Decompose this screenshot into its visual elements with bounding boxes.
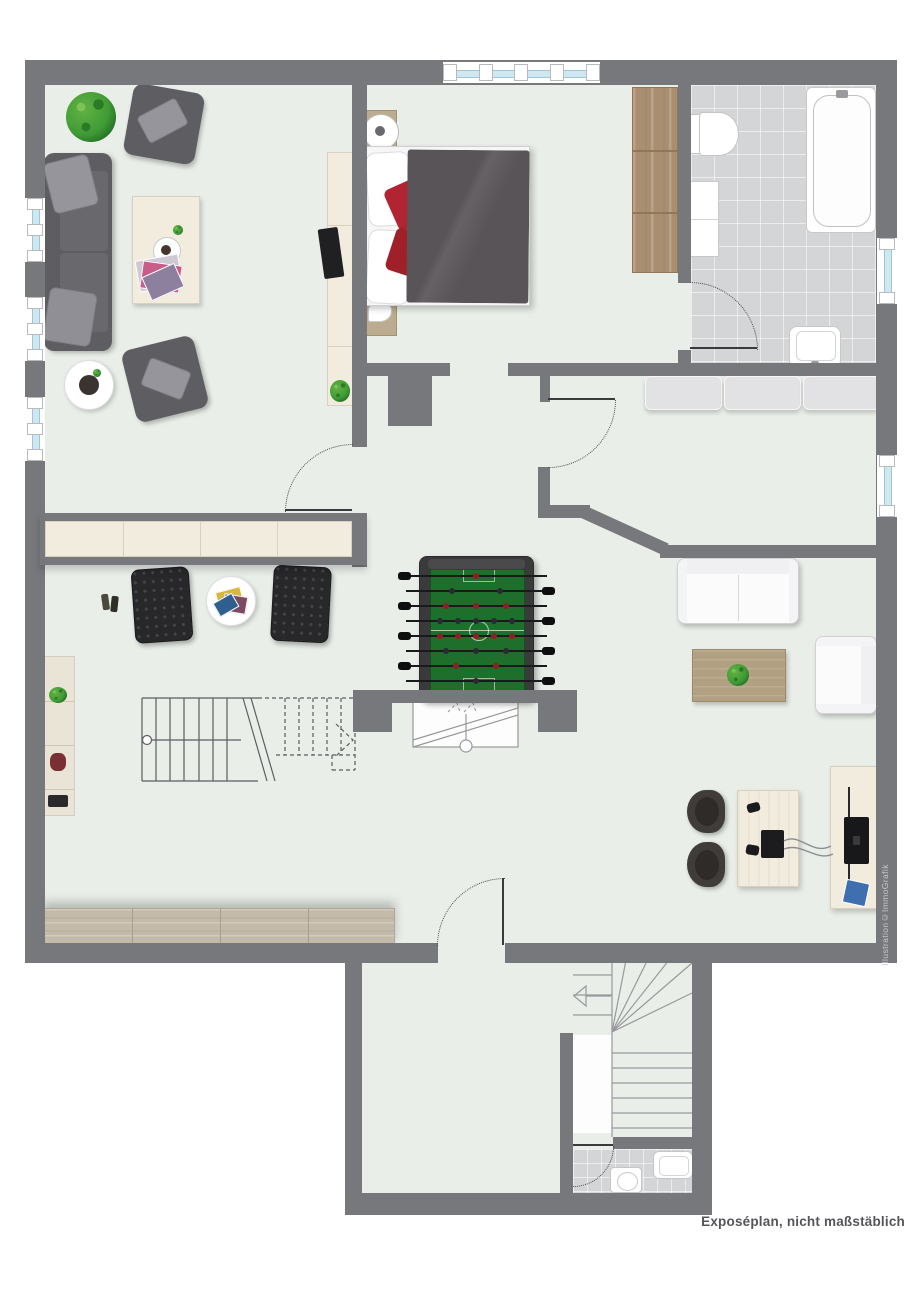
wall (345, 1193, 712, 1215)
wall (560, 1033, 573, 1193)
wall (660, 545, 876, 558)
wall (538, 690, 577, 732)
window-mullion (27, 323, 43, 335)
window-right-2 (877, 455, 897, 517)
wall (678, 85, 691, 283)
window-mullion (27, 224, 43, 236)
wall (388, 376, 432, 426)
bar-counter-top (45, 521, 352, 557)
window-right-1 (877, 238, 897, 304)
window-mullion (27, 250, 43, 262)
counter-divider (123, 522, 124, 556)
window-mullion (27, 449, 43, 461)
wall (613, 1137, 692, 1149)
foosball-rods (0, 0, 920, 1299)
window-mullion (479, 64, 493, 81)
window-left-3 (25, 397, 45, 461)
window-mullion (27, 297, 43, 309)
wall (692, 943, 712, 1215)
wall (25, 943, 438, 963)
window-mullion (586, 64, 600, 81)
floor-plan: Exposéplan, nicht maßstäblich Illustrati… (0, 0, 920, 1299)
window-mullion (879, 505, 895, 517)
wall (367, 363, 450, 376)
window-mullion (879, 455, 895, 467)
wall (678, 350, 691, 376)
wall (25, 60, 45, 963)
window-left-2 (25, 297, 45, 361)
wall (353, 690, 392, 732)
window-mullion (27, 349, 43, 361)
window-mullion (879, 238, 895, 250)
wall (508, 363, 876, 376)
wall (352, 85, 367, 447)
illustration-credit: Illustration©ImmoGrafik (880, 826, 890, 966)
counter-divider (200, 522, 201, 556)
window-mullion (443, 64, 457, 81)
window-mullion (27, 198, 43, 210)
window-mullion (550, 64, 564, 81)
window-mullion (879, 292, 895, 304)
plan-disclaimer: Exposéplan, nicht maßstäblich (620, 1214, 905, 1229)
wall (345, 943, 362, 1215)
window-mullion (514, 64, 528, 81)
window-top (443, 62, 600, 83)
wall (505, 943, 876, 963)
counter-divider (277, 522, 278, 556)
window-left-1 (25, 198, 45, 262)
window-mullion (27, 423, 43, 435)
window-mullion (27, 397, 43, 409)
